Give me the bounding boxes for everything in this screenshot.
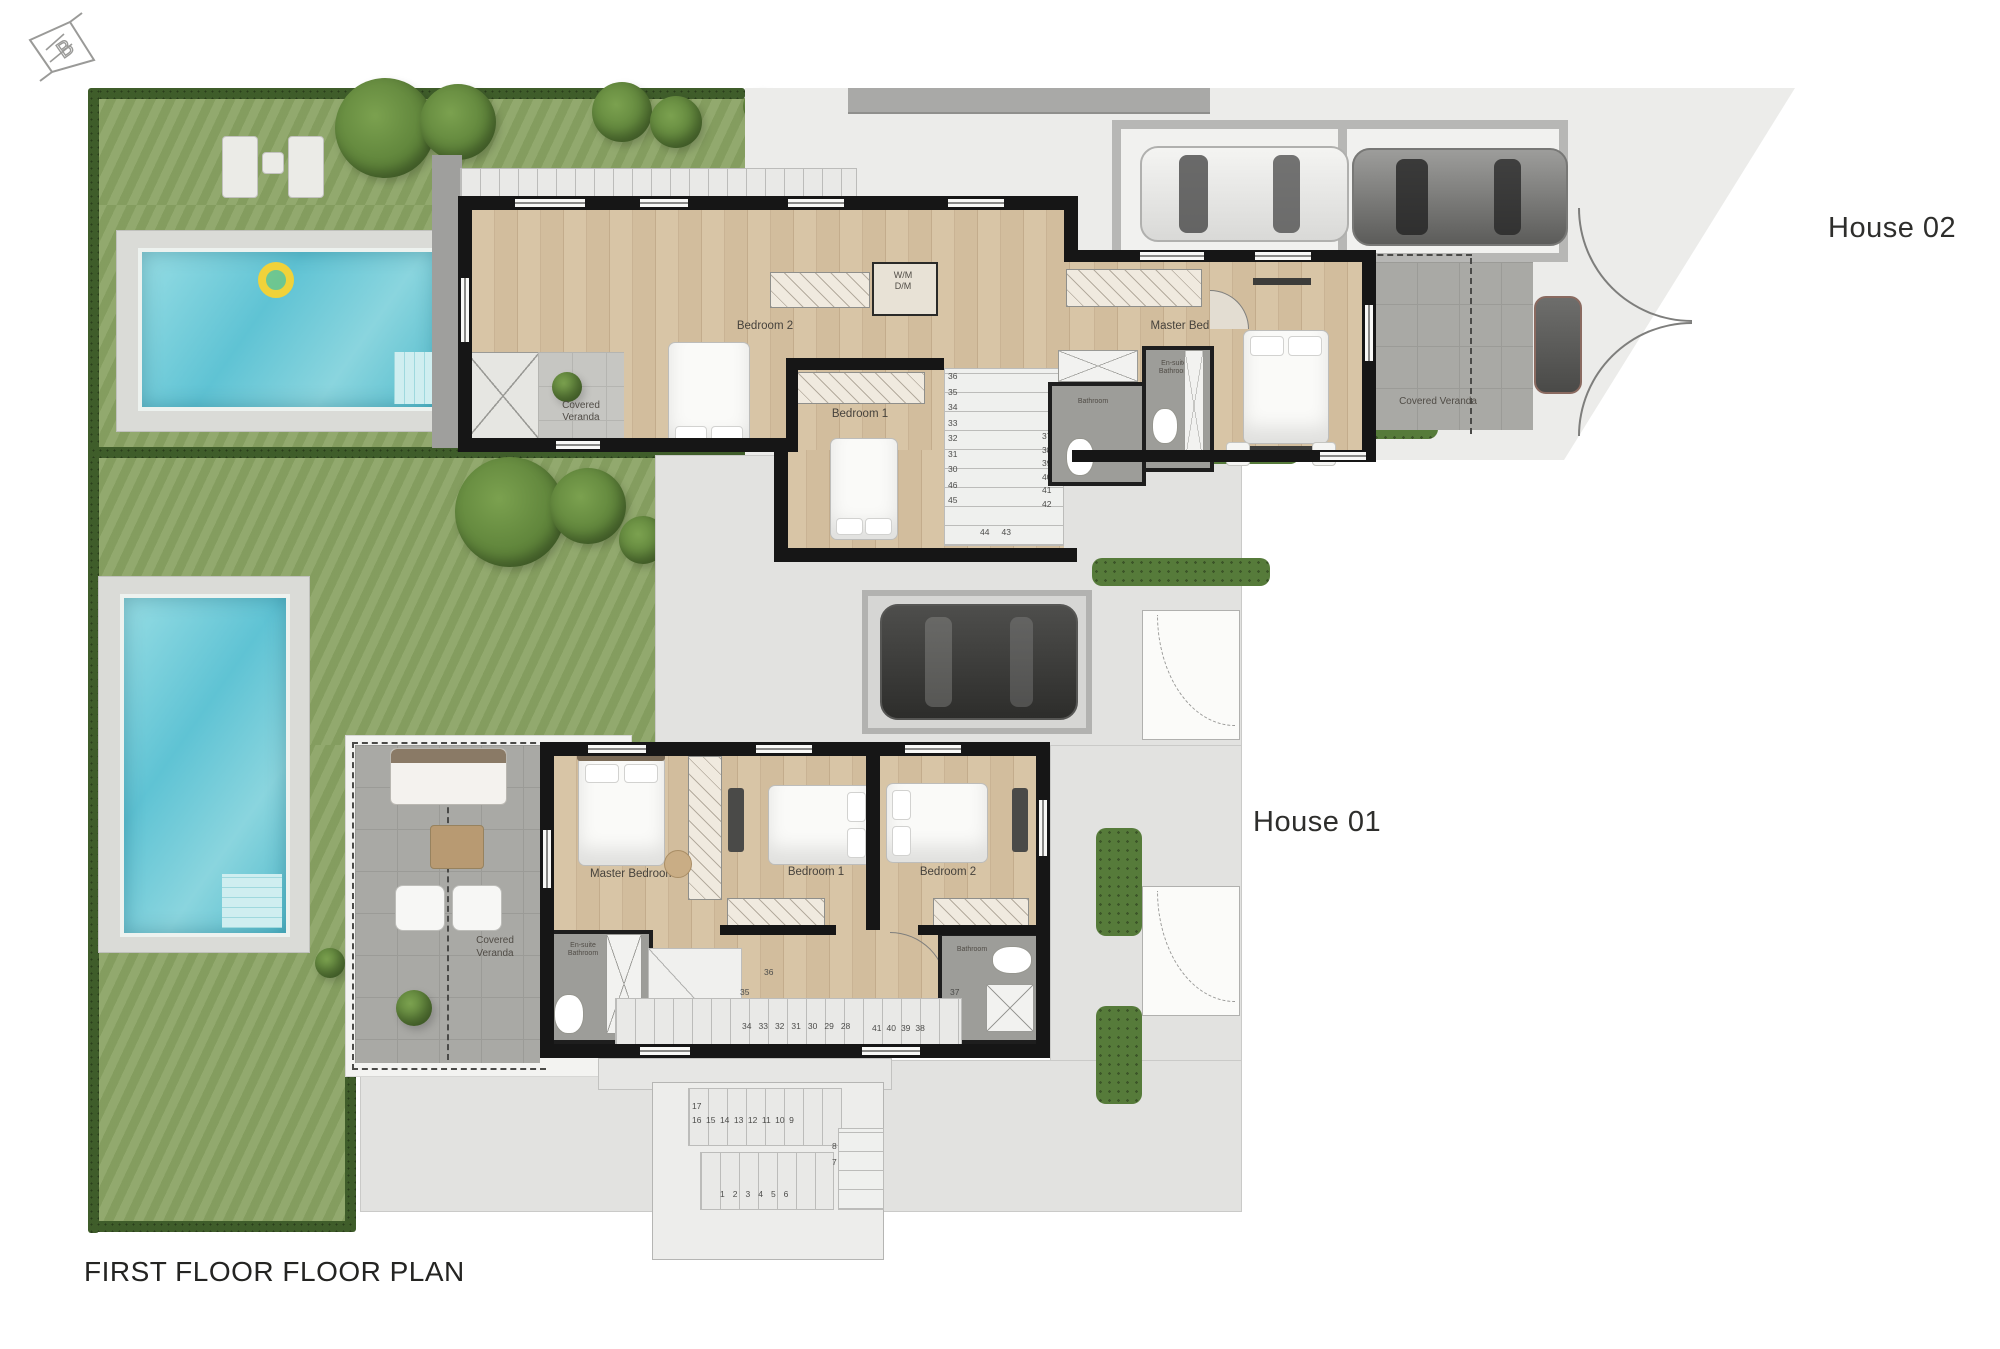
tv-console <box>1253 278 1311 285</box>
pillow <box>585 764 619 783</box>
house01-bedroom2-label: Bedroom 2 <box>888 866 1008 878</box>
window <box>905 745 961 753</box>
floor-plan-canvas: B <box>0 0 2000 1349</box>
exterior-stair-numbers: 123456 <box>720 1190 788 1199</box>
pillow <box>1250 336 1284 356</box>
stair-number: 33 <box>948 419 957 428</box>
house02-wardrobe <box>770 272 870 308</box>
stair-number: 7 <box>832 1158 837 1167</box>
pillow <box>892 826 911 856</box>
planting-strip <box>1096 828 1142 936</box>
stair-number: 42 <box>1042 500 1051 509</box>
house02-shower <box>1058 350 1138 382</box>
stair-number: 14 <box>720 1116 729 1125</box>
house02-bathroom-label: Bathroom <box>1052 398 1134 406</box>
house02-wardrobe <box>795 372 925 404</box>
house02-stair-numbers-left: 363534333231304645 <box>948 372 957 505</box>
house01-bedroom1-label: Bedroom 1 <box>756 866 876 878</box>
house02-bedroom2-bed <box>668 342 750 452</box>
wall <box>918 925 1048 935</box>
pillow <box>865 518 892 535</box>
window <box>461 278 469 342</box>
stair-number: 33 <box>758 1022 767 1031</box>
pillow <box>847 828 866 858</box>
window <box>515 199 585 207</box>
window <box>1140 252 1204 260</box>
side-gate <box>1142 610 1240 740</box>
pillow <box>892 790 911 820</box>
stair-number: 39 <box>901 1024 910 1033</box>
stair-number: 36 <box>948 372 957 381</box>
house01-stair-numbers: 34333231302928 <box>742 1022 850 1031</box>
window <box>1039 800 1047 856</box>
wall <box>786 358 798 452</box>
tree <box>650 96 702 148</box>
house02-master-bed <box>1243 330 1329 444</box>
exterior-stair-numbers: 87 <box>832 1142 837 1166</box>
pool-float-ring <box>258 262 294 298</box>
car-white <box>1140 146 1349 242</box>
house01-shower <box>986 984 1034 1032</box>
window <box>788 199 844 207</box>
gate-swing-arc <box>1157 615 1235 726</box>
exterior-stairs-lower-flight <box>700 1152 834 1210</box>
stair-number: 31 <box>791 1022 800 1031</box>
pillow <box>1288 336 1322 356</box>
house01-bedroom1-bed <box>768 785 872 865</box>
stair-number: 17 <box>692 1102 701 1111</box>
wall <box>1072 250 1374 262</box>
stair-number: 34 <box>948 403 957 412</box>
house01-wardrobe <box>688 756 722 900</box>
house01-bedroom2-bed <box>886 783 988 863</box>
coffee-table <box>430 825 484 869</box>
brand-logo-icon: B <box>20 10 104 82</box>
stair-number: 36 <box>764 968 773 977</box>
plant <box>552 372 582 402</box>
house02-veranda-left <box>538 352 624 438</box>
stair-number: 45 <box>948 496 957 505</box>
gate-swing-arc <box>1157 891 1235 1002</box>
house02-bedroom1-bed <box>830 438 898 540</box>
pool-steps <box>222 874 282 928</box>
stair-number: 15 <box>706 1116 715 1125</box>
stair-number: 40 <box>886 1024 895 1033</box>
wardrobe-tall <box>728 788 744 852</box>
door-opening <box>1320 452 1366 460</box>
toilet <box>1152 408 1178 444</box>
stair-number: 43 <box>1001 528 1010 537</box>
stair-number: 44 <box>980 528 989 537</box>
wall <box>540 742 554 1058</box>
stair-number: 30 <box>808 1022 817 1031</box>
pouf <box>664 850 692 878</box>
window <box>1365 305 1373 361</box>
stair-number: 13 <box>734 1116 743 1125</box>
stair-number: 41 <box>872 1024 881 1033</box>
house02-veranda-left-label: CoveredVeranda <box>534 400 628 424</box>
stair-number: 10 <box>775 1116 784 1125</box>
stair-number: 5 <box>771 1190 776 1199</box>
armchair <box>395 885 445 931</box>
house01-title: House 01 <box>1253 806 1381 839</box>
boundary-fence <box>848 88 1210 114</box>
house02-wardrobe <box>1066 269 1202 307</box>
stair-number: 16 <box>692 1116 701 1125</box>
exterior-stairs-winder <box>838 1128 884 1210</box>
pillow <box>624 764 658 783</box>
window <box>588 745 646 753</box>
wall <box>540 1044 1050 1058</box>
house02-laundry-label: W/MD/M <box>874 270 932 292</box>
stair-number: 37 <box>950 988 959 997</box>
stair-number: 32 <box>775 1022 784 1031</box>
stair-number: 46 <box>948 481 957 490</box>
wardrobe-tall <box>1012 788 1028 852</box>
wall <box>786 358 944 370</box>
stair-number: 31 <box>948 450 957 459</box>
house02-stair-numbers-bottom: 4443 <box>980 528 1011 537</box>
stair-number: 29 <box>824 1022 833 1031</box>
armchair <box>452 885 502 931</box>
house01-master-bed <box>578 756 665 866</box>
wall <box>458 438 788 452</box>
car-dark <box>1352 148 1568 246</box>
house02-planter <box>466 352 540 440</box>
window <box>640 1047 690 1055</box>
sun-lounger <box>288 136 324 198</box>
stair-number: 2 <box>733 1190 738 1199</box>
page-title: FIRST FLOOR FLOOR PLAN <box>84 1256 465 1288</box>
house02-shower <box>1184 350 1204 462</box>
house01-stair-numbers: 41403938 <box>872 1024 925 1033</box>
stair-number: 12 <box>748 1116 757 1125</box>
car-rear-window <box>1494 159 1522 234</box>
logo-letter: B <box>52 34 78 63</box>
stair-number: 6 <box>784 1190 789 1199</box>
bush <box>315 948 345 978</box>
pillow <box>836 518 863 535</box>
planting-strip <box>1092 558 1270 586</box>
window <box>1255 252 1311 260</box>
car-windshield <box>1179 155 1208 232</box>
side-table <box>262 152 284 174</box>
house02-veranda-label: Covered Veranda <box>1378 398 1498 406</box>
window <box>862 1047 920 1055</box>
house02-title: House 02 <box>1828 212 1956 245</box>
stair-number: 35 <box>948 388 957 397</box>
side-gate <box>1142 886 1240 1016</box>
window <box>948 199 1004 207</box>
house02-bedroom2-label: Bedroom 2 <box>700 320 830 332</box>
stair-number: 4 <box>758 1190 763 1199</box>
outdoor-sofa <box>390 748 507 805</box>
wall <box>720 925 836 935</box>
pillow <box>847 792 866 822</box>
hedge-bottom <box>88 1221 356 1232</box>
sun-lounger <box>222 136 258 198</box>
stair-number: 38 <box>915 1024 924 1033</box>
stair-number: 28 <box>841 1022 850 1031</box>
stair-number: 3 <box>745 1190 750 1199</box>
car-rear-window <box>1010 617 1033 707</box>
house02-bedroom1-label: Bedroom 1 <box>800 408 920 420</box>
wall <box>774 548 1077 562</box>
stair-number: 32 <box>948 434 957 443</box>
plant <box>396 990 432 1026</box>
tree <box>550 468 626 544</box>
house01-veranda-label: CoveredVeranda <box>452 934 538 960</box>
stair-number: 35 <box>740 988 749 997</box>
car-parked <box>1534 296 1582 394</box>
tree <box>455 457 565 567</box>
sofa-back <box>391 749 506 763</box>
toilet <box>554 994 584 1034</box>
stair-number: 9 <box>789 1116 794 1125</box>
exterior-stair-numbers: 161514131211109 <box>692 1116 794 1125</box>
car-windshield <box>925 617 952 707</box>
pool-steps <box>394 352 434 404</box>
car-windshield <box>1396 159 1428 234</box>
stair-number: 8 <box>832 1142 837 1151</box>
car-garage <box>880 604 1078 720</box>
stair-number: 30 <box>948 465 957 474</box>
stair-number: 11 <box>762 1116 771 1125</box>
wall <box>1036 742 1050 1058</box>
wall <box>774 438 788 560</box>
car-rear-window <box>1273 155 1300 232</box>
stair-number: 34 <box>742 1022 751 1031</box>
window <box>640 199 688 207</box>
toilet <box>992 946 1032 974</box>
door-opening <box>556 441 600 449</box>
veranda-roof-line <box>1470 258 1472 434</box>
stair-number: 1 <box>720 1190 725 1199</box>
planting-strip <box>1096 1006 1142 1104</box>
wall <box>866 742 880 930</box>
window <box>543 830 551 888</box>
stair-number: 41 <box>1042 486 1051 495</box>
tree <box>420 84 496 160</box>
tree <box>592 82 652 142</box>
window <box>756 745 812 753</box>
